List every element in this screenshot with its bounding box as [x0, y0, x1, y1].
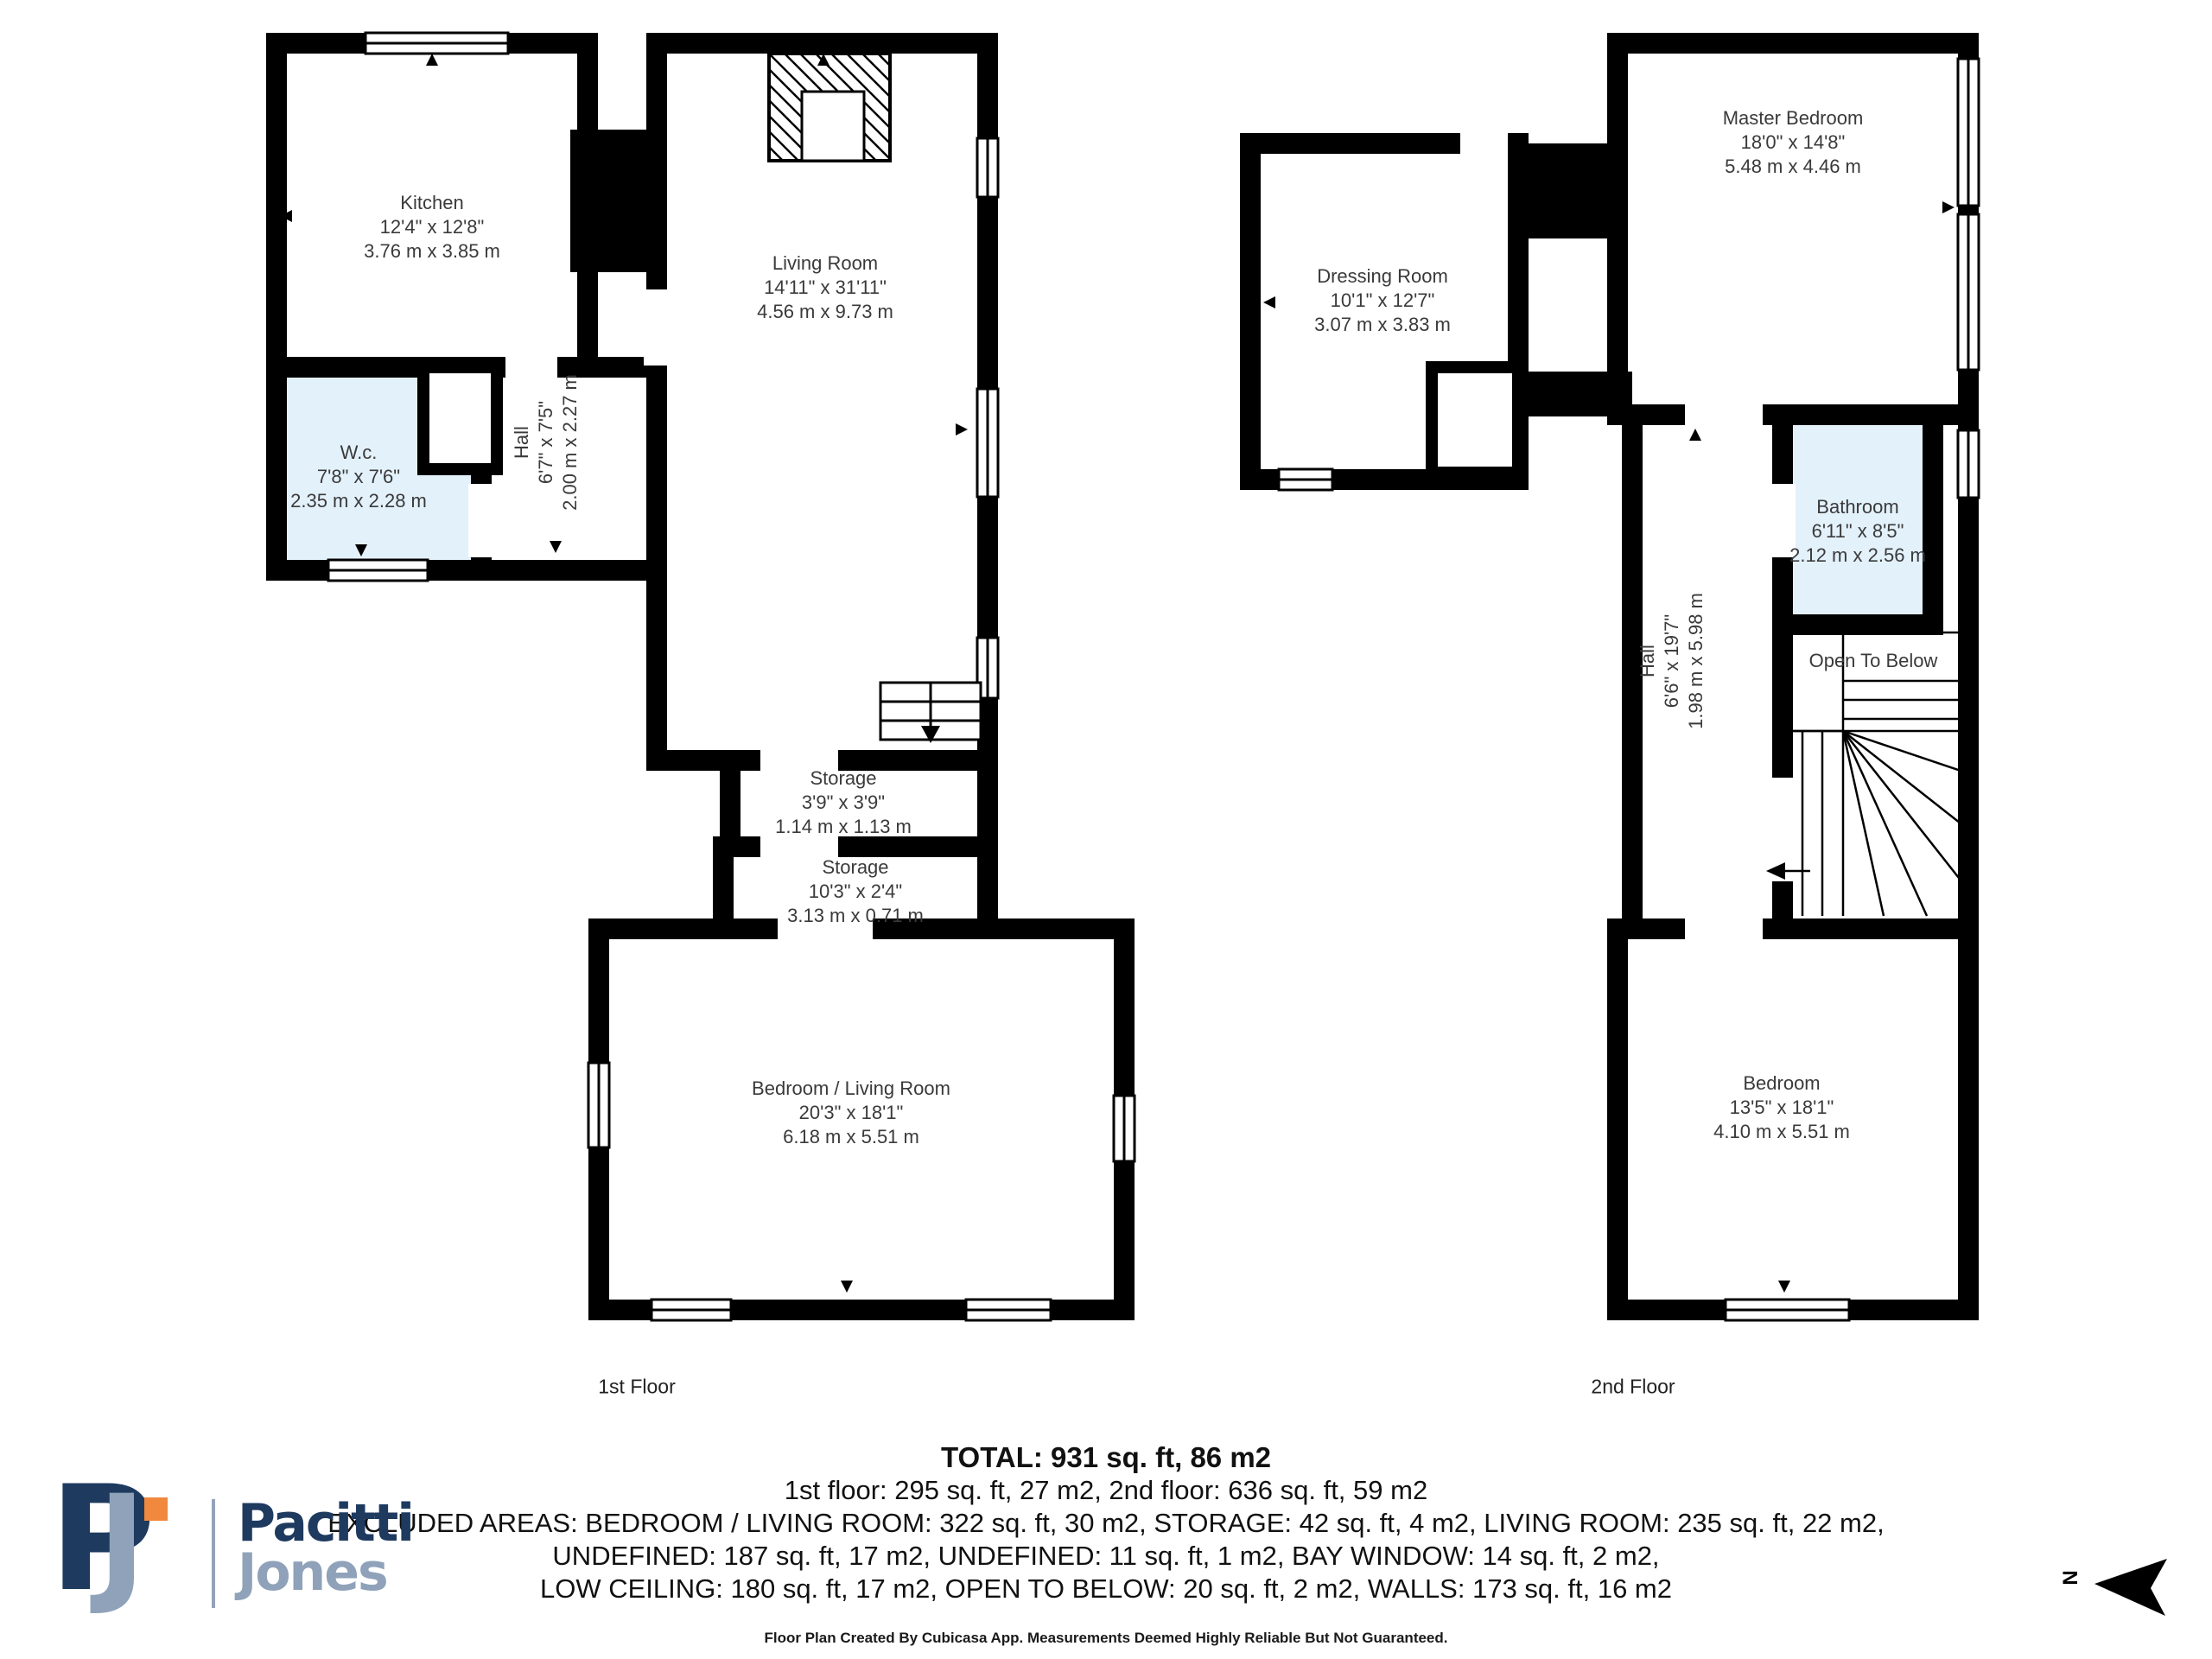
summary-total: TOTAL: 931 sq. ft, 86 m2 — [0, 1441, 2212, 1474]
room-label-kitchen: Kitchen 12'4" x 12'8" 3.76 m x 3.85 m — [364, 191, 500, 264]
window-wc-bottom — [328, 560, 428, 581]
caption-first-floor: 1st Floor — [598, 1376, 675, 1399]
wall-connector-dressing-hall — [1518, 372, 1632, 416]
pacitti-jones-logo: P J Pacitti Jones — [49, 1497, 413, 1611]
monogram-letter-j: J — [98, 1478, 146, 1608]
window-bedroom-second-bottom — [1726, 1300, 1849, 1320]
wordmark-line-2: Jones — [238, 1548, 413, 1598]
window-bedliving-bottom-right — [966, 1300, 1051, 1320]
monogram-orange-dot — [144, 1497, 168, 1521]
closet-second-floor — [1432, 367, 1518, 473]
room-label-bedroom-living-room: Bedroom / Living Room 20'3" x 18'1" 6.18… — [752, 1077, 950, 1149]
logo-divider — [212, 1499, 215, 1608]
room-label-storage-1: Storage 3'9" x 3'9" 1.14 m x 1.13 m — [775, 766, 912, 839]
chimney-hatch-icon — [769, 54, 890, 161]
staircase-first-floor — [880, 683, 981, 743]
closet-first-floor — [423, 367, 497, 469]
master-bedroom-outline — [1618, 43, 1968, 415]
window-living-right-upper — [977, 138, 998, 197]
floorplan-page: N Kitchen 12'4" x 12'8" 3.76 m x 3.85 m … — [0, 0, 2212, 1659]
room-label-dressing-room: Dressing Room 10'1" x 12'7" 3.07 m x 3.8… — [1314, 264, 1451, 337]
caption-second-floor: 2nd Floor — [1591, 1376, 1675, 1399]
window-bedliving-left — [588, 1063, 609, 1147]
wall-connector-dressing-master — [1518, 143, 1618, 238]
room-label-storage-2: Storage 10'3" x 2'4" 3.13 m x 0.71 m — [787, 855, 924, 928]
room-label-wc: W.c. 7'8" x 7'6" 2.35 m x 2.28 m — [290, 441, 427, 513]
window-living-right-middle — [977, 389, 998, 497]
room-label-living-room: Living Room 14'11" x 31'11" 4.56 m x 9.7… — [757, 251, 893, 324]
room-label-bedroom-second: Bedroom 13'5" x 18'1" 4.10 m x 5.51 m — [1713, 1071, 1850, 1144]
window-master-right-upper — [1958, 59, 1979, 206]
window-bathroom-right — [1958, 430, 1979, 498]
pj-monogram: P J — [49, 1497, 186, 1611]
room-label-master-bedroom: Master Bedroom 18'0" x 14'8" 5.48 m x 4.… — [1723, 106, 1864, 179]
window-bedliving-bottom-left — [652, 1300, 731, 1320]
wall-connector-kitchen-living — [570, 130, 657, 272]
room-label-bathroom: Bathroom 6'11" x 8'5" 2.12 m x 2.56 m — [1789, 495, 1926, 568]
logo-wordmark: Pacitti Jones — [238, 1499, 413, 1598]
window-kitchen-top — [365, 33, 508, 54]
room-label-hall-second: Hall 6'6" x 19'7" 1.98 m x 5.98 m — [1636, 593, 1708, 729]
room-label-hall-first: Hall 6'7" x 7'5" 2.00 m x 2.27 m — [510, 374, 582, 511]
floorplan-drawing: N — [0, 0, 2212, 1659]
wordmark-line-1: Pacitti — [238, 1499, 413, 1548]
disclaimer-note: Floor Plan Created By Cubicasa App. Meas… — [0, 1630, 2212, 1647]
window-dressing-bottom — [1279, 469, 1332, 490]
room-label-open-to-below: Open To Below — [1809, 649, 1938, 673]
window-bedliving-right — [1114, 1096, 1135, 1161]
window-master-right-lower — [1958, 214, 1979, 370]
